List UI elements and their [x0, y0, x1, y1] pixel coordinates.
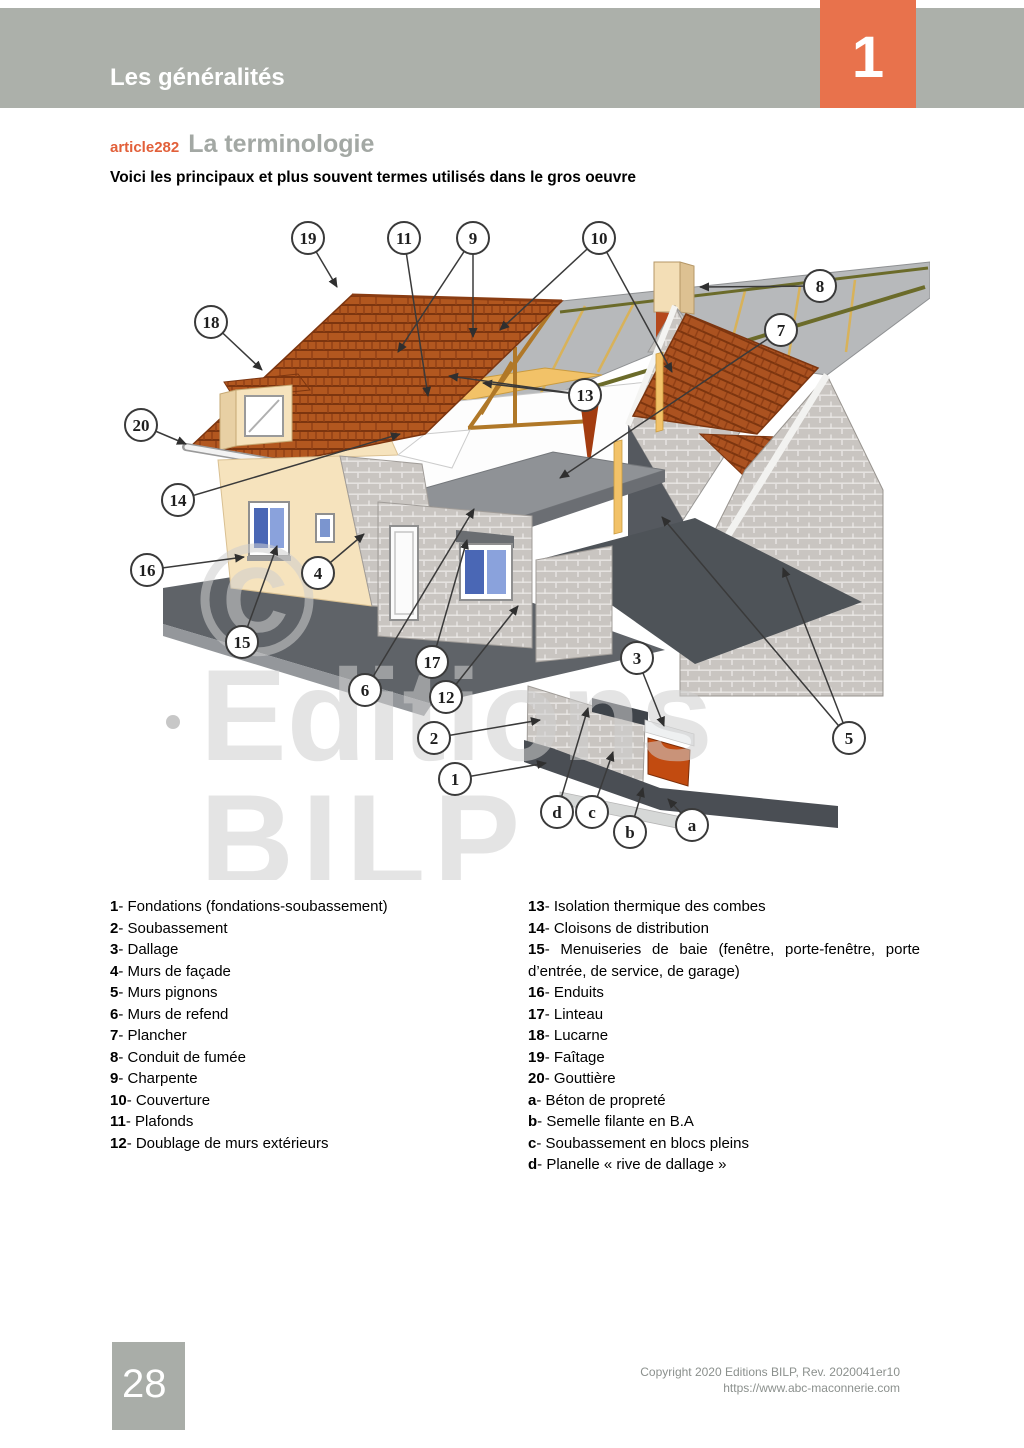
watermark-dot	[166, 715, 180, 729]
legend-item-18: 18- Lucarne	[528, 1025, 920, 1047]
svg-text:11: 11	[396, 229, 412, 248]
legend-item-1: 1- Fondations (fondations-soubassement)	[110, 896, 518, 918]
doublage-strip	[656, 352, 663, 432]
svg-text:17: 17	[424, 653, 442, 672]
legend-item-5: 5- Murs pignons	[110, 982, 518, 1004]
svg-text:b: b	[625, 823, 634, 842]
watermark-line2: BILP	[200, 767, 528, 880]
legend-item-13: 13- Isolation thermique des combes	[528, 896, 920, 918]
chapter-number: 1	[852, 18, 884, 91]
article-intro: Voici les principaux et plus souvent ter…	[110, 169, 636, 187]
callout-18: 18	[195, 306, 262, 370]
article-id: article282	[110, 139, 179, 156]
legend-item-15: 15- Menuiseries de baie (fenêtre, porte-…	[528, 939, 920, 982]
svg-text:1: 1	[451, 770, 460, 789]
callout-19: 19	[292, 222, 337, 287]
svg-text:d: d	[552, 803, 562, 822]
article-title: La terminologie	[188, 130, 374, 159]
legend-item-c: c- Soubassement en blocs pleins	[528, 1133, 920, 1155]
legend-column-left: 1- Fondations (fondations-soubassement)2…	[110, 896, 518, 1154]
callout-20: 20	[125, 409, 186, 444]
svg-text:5: 5	[845, 729, 854, 748]
legend-item-10: 10- Couverture	[110, 1090, 518, 1112]
svg-text:6: 6	[361, 681, 370, 700]
svg-text:12: 12	[438, 688, 455, 707]
svg-text:16: 16	[139, 561, 156, 580]
legend-item-8: 8- Conduit de fumée	[110, 1047, 518, 1069]
legend-item-12: 12- Doublage de murs extérieurs	[110, 1133, 518, 1155]
chapter-number-box: 1	[820, 0, 916, 108]
legend-item-2: 2- Soubassement	[110, 918, 518, 940]
legend-item-a: a- Béton de propreté	[528, 1090, 920, 1112]
legend-item-9: 9- Charpente	[110, 1068, 518, 1090]
svg-text:20: 20	[133, 416, 150, 435]
svg-text:8: 8	[816, 277, 825, 296]
legend-item-b: b- Semelle filante en B.A	[528, 1111, 920, 1133]
legend-item-4: 4- Murs de façade	[110, 961, 518, 983]
legend-item-3: 3- Dallage	[110, 939, 518, 961]
svg-text:18: 18	[203, 313, 220, 332]
svg-text:7: 7	[777, 321, 786, 340]
legend-item-16: 16- Enduits	[528, 982, 920, 1004]
doublage-strip	[614, 440, 622, 534]
front-block-wall	[378, 502, 532, 648]
legend-item-19: 19- Faîtage	[528, 1047, 920, 1069]
legend-item-20: 20- Gouttière	[528, 1068, 920, 1090]
svg-text:15: 15	[234, 633, 251, 652]
svg-text:9: 9	[469, 229, 478, 248]
legend-item-d: d- Planelle « rive de dallage »	[528, 1154, 920, 1176]
page-number: 28	[122, 1362, 167, 1407]
legend-item-17: 17- Linteau	[528, 1004, 920, 1026]
svg-text:a: a	[688, 816, 697, 835]
svg-text:14: 14	[170, 491, 188, 510]
book-page: Les généralités 1 article282 La terminol…	[0, 0, 1024, 1448]
page-number-box: 28	[112, 1342, 185, 1430]
copyright: Copyright 2020 Editions BILP, Rev. 20200…	[640, 1364, 900, 1396]
svg-text:13: 13	[577, 386, 594, 405]
copyright-line1: Copyright 2020 Editions BILP, Rev. 20200…	[640, 1364, 900, 1380]
legend-item-11: 11- Plafonds	[110, 1111, 518, 1133]
legend-column-right: 13- Isolation thermique des combes14- Cl…	[528, 896, 920, 1176]
svg-text:c: c	[588, 803, 596, 822]
article-heading: article282 La terminologie	[110, 130, 374, 159]
chapter-title: Les généralités	[110, 64, 285, 92]
copyright-line2: https://www.abc-maconnerie.com	[640, 1380, 900, 1396]
house-terminology-diagram: © Editions BILP 191191087181320141641561…	[100, 210, 930, 880]
legend-item-7: 7- Plancher	[110, 1025, 518, 1047]
legend-item-6: 6- Murs de refend	[110, 1004, 518, 1026]
svg-text:3: 3	[633, 649, 642, 668]
svg-text:10: 10	[591, 229, 608, 248]
svg-text:4: 4	[314, 564, 323, 583]
legend-item-14: 14- Cloisons de distribution	[528, 918, 920, 940]
svg-text:19: 19	[300, 229, 317, 248]
svg-text:2: 2	[430, 729, 439, 748]
